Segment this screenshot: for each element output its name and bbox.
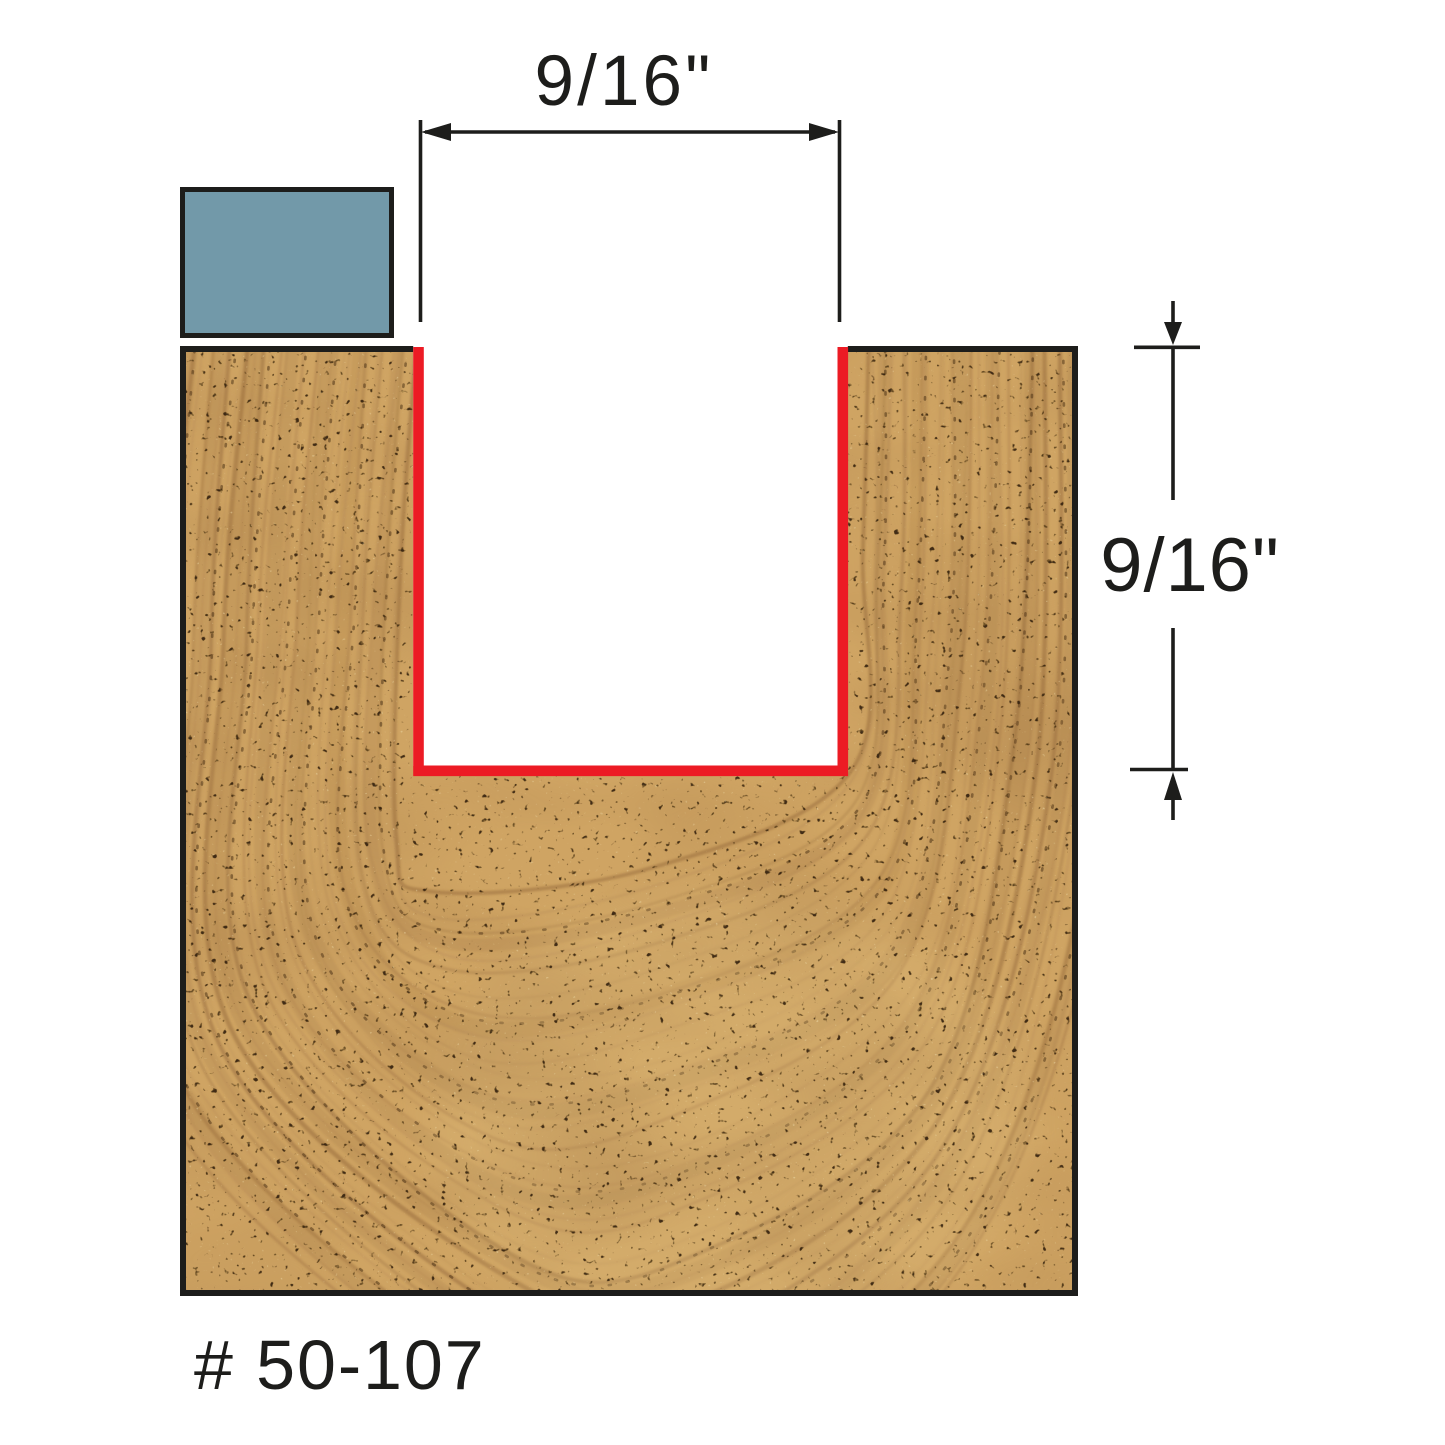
svg-text:9/16": 9/16" [535,42,714,121]
svg-text:9/16": 9/16" [1100,523,1279,608]
svg-text:# 50-107: # 50-107 [194,1326,486,1404]
